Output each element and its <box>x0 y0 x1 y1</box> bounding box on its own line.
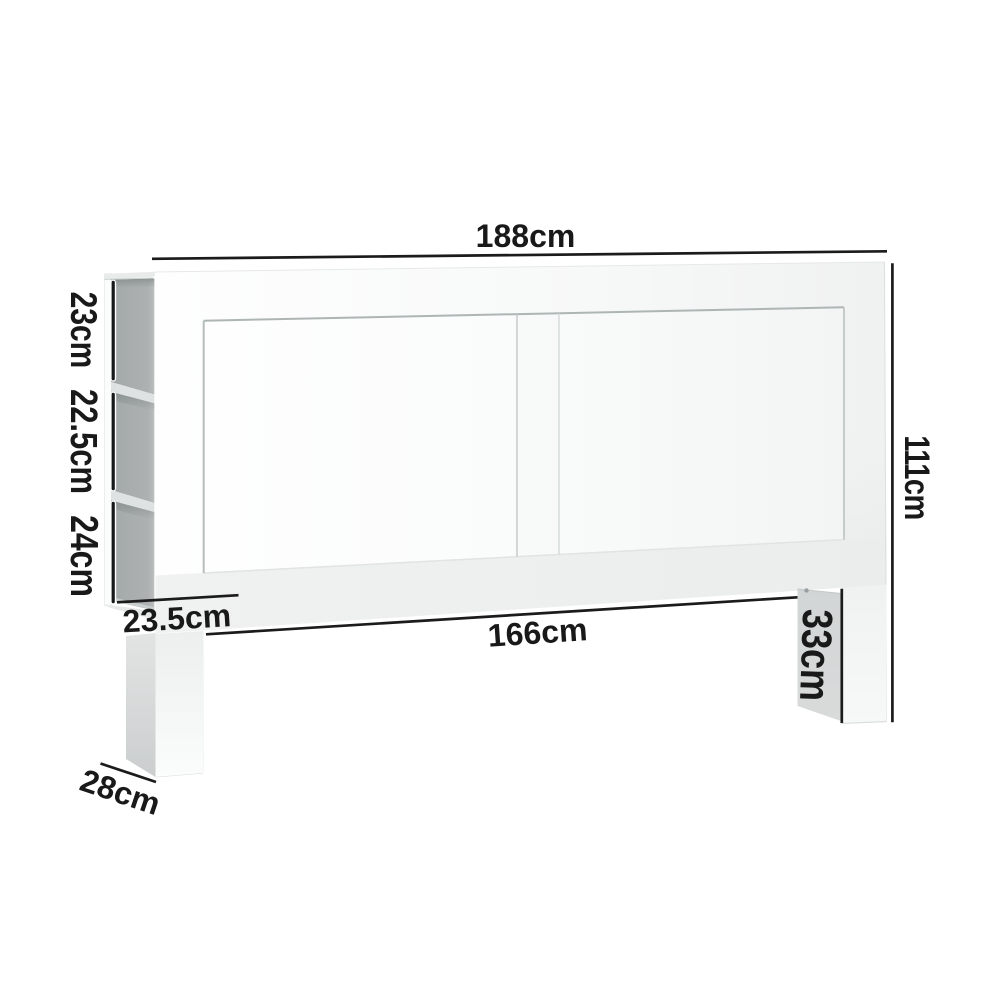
svg-text:111cm: 111cm <box>898 435 937 520</box>
svg-text:23.5cm: 23.5cm <box>122 597 232 639</box>
svg-text:166cm: 166cm <box>487 611 589 654</box>
svg-text:188cm: 188cm <box>476 218 576 254</box>
svg-text:22.5cm: 22.5cm <box>62 389 104 494</box>
svg-text:24cm: 24cm <box>62 515 106 597</box>
svg-text:33cm: 33cm <box>790 608 841 702</box>
svg-text:23cm: 23cm <box>62 292 102 369</box>
